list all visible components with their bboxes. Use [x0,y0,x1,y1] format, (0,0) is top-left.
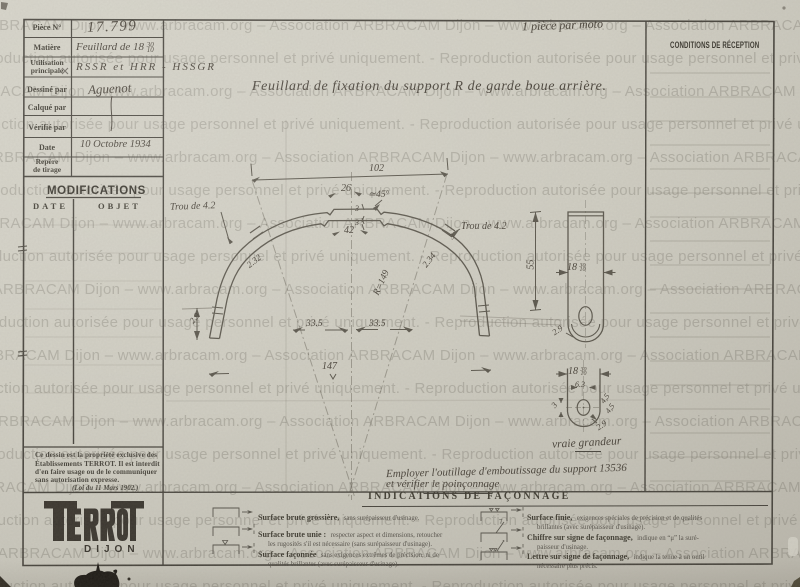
svg-text:7: 7 [499,518,503,526]
